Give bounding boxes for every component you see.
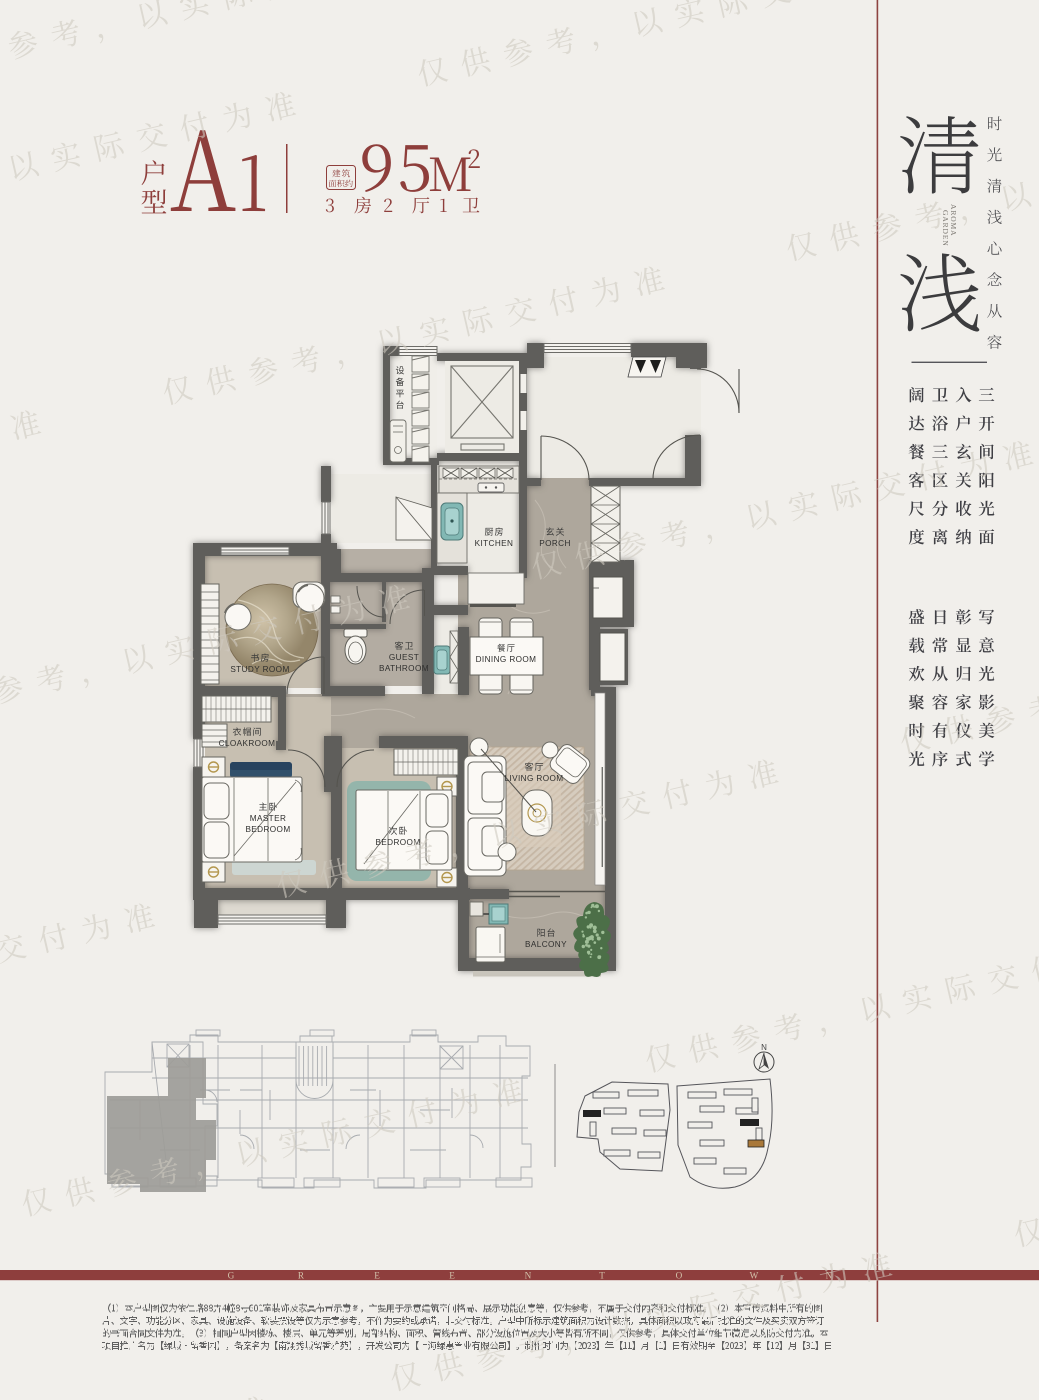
svg-text:KITCHEN: KITCHEN bbox=[475, 539, 514, 548]
svg-text:GARDEN: GARDEN bbox=[941, 210, 950, 247]
svg-text:N: N bbox=[525, 1271, 532, 1281]
svg-text:G: G bbox=[228, 1271, 235, 1281]
svg-text:DINING ROOM: DINING ROOM bbox=[476, 655, 537, 664]
svg-text:E: E bbox=[374, 1271, 380, 1281]
svg-text:O: O bbox=[676, 1271, 683, 1281]
svg-text:CLOAKROOM: CLOAKROOM bbox=[219, 739, 276, 748]
svg-text:W: W bbox=[750, 1271, 759, 1281]
svg-text:R: R bbox=[298, 1271, 305, 1281]
svg-text:PORCH: PORCH bbox=[539, 539, 571, 548]
svg-text:BALCONY: BALCONY bbox=[525, 940, 567, 949]
svg-text:STUDY ROOM: STUDY ROOM bbox=[230, 665, 289, 674]
svg-text:LIVING ROOM: LIVING ROOM bbox=[505, 774, 564, 783]
svg-text:N: N bbox=[761, 1043, 767, 1052]
svg-text:BATHROOM: BATHROOM bbox=[379, 664, 429, 673]
svg-text:E: E bbox=[449, 1271, 455, 1281]
svg-text:MASTER: MASTER bbox=[250, 814, 287, 823]
svg-text:T: T bbox=[599, 1271, 605, 1281]
svg-text:BEDROOM: BEDROOM bbox=[245, 825, 290, 834]
svg-text:GUEST: GUEST bbox=[389, 653, 419, 662]
